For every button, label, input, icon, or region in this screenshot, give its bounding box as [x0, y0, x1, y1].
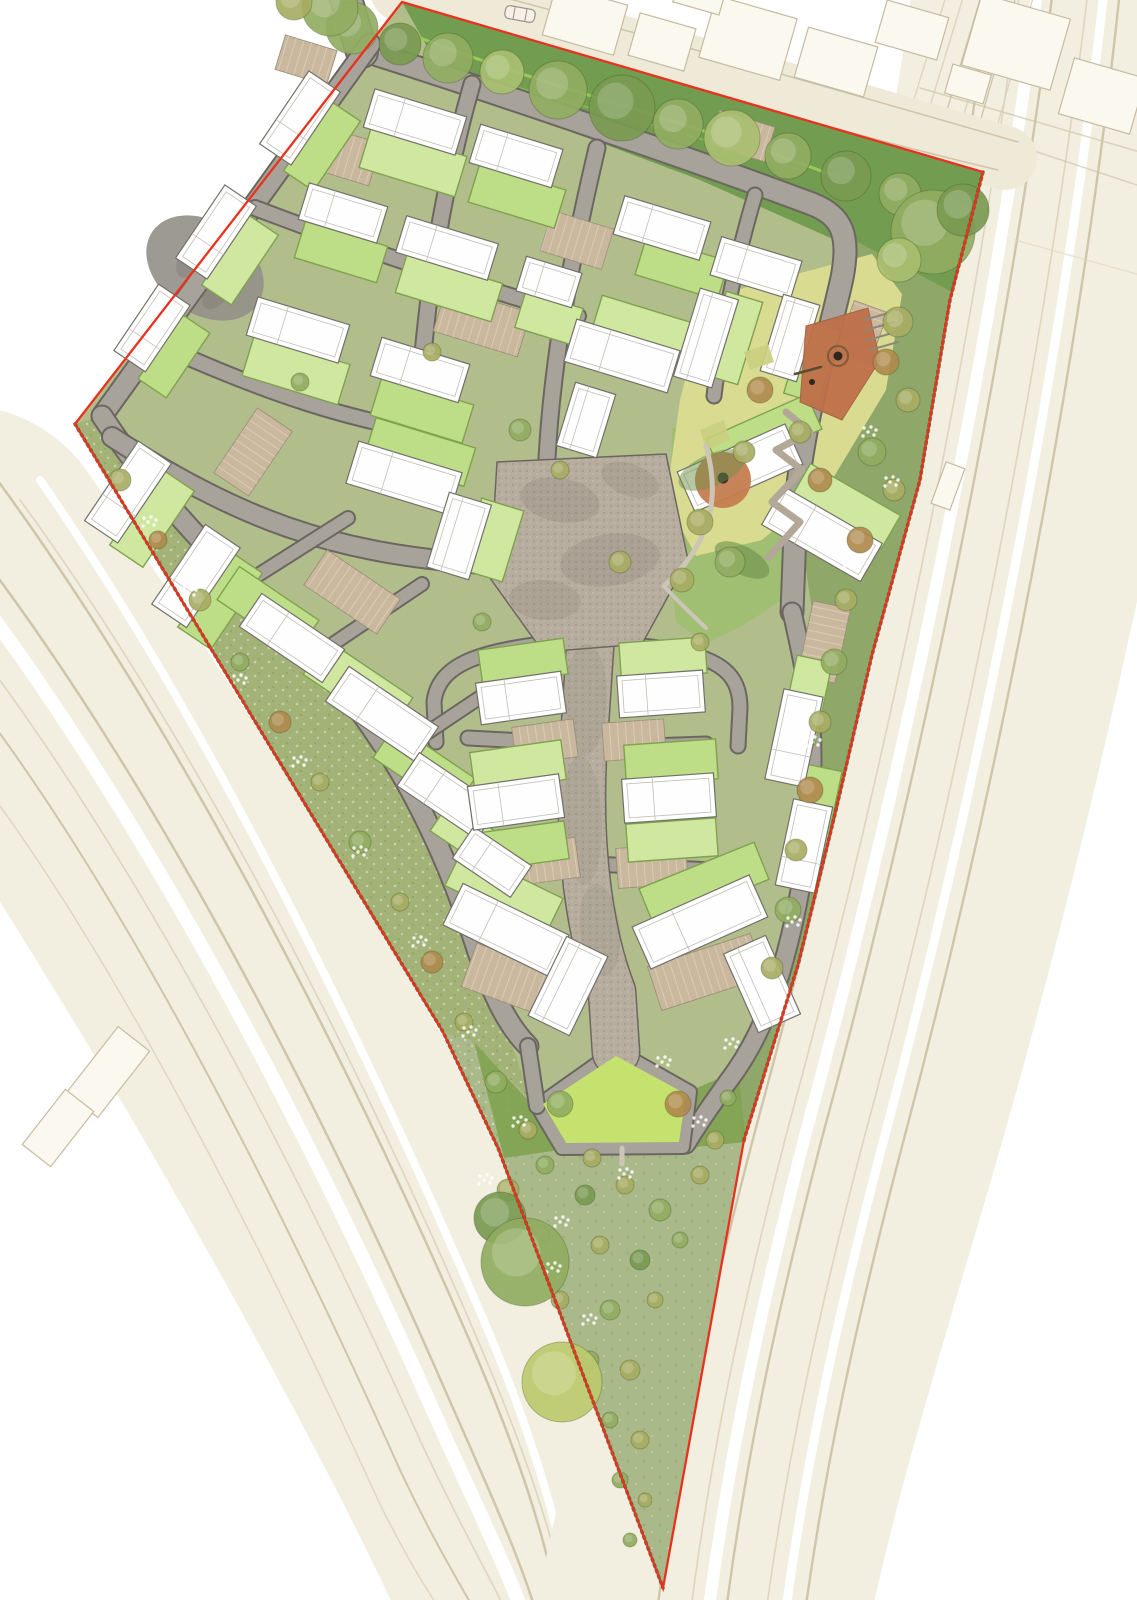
tree — [706, 1131, 724, 1149]
tree — [575, 1185, 595, 1205]
flower-dot — [816, 743, 819, 746]
tree — [883, 479, 905, 501]
tree — [809, 711, 831, 733]
flower-dot — [668, 1058, 671, 1061]
flower-dot — [872, 433, 875, 436]
flower-dot — [519, 1115, 522, 1118]
tree-highlight — [887, 310, 904, 327]
tree — [391, 893, 409, 911]
tree — [733, 441, 755, 463]
flower-dot — [472, 1033, 475, 1036]
flower-dot — [192, 593, 195, 596]
tree — [665, 1091, 691, 1117]
flower-dot — [786, 916, 789, 919]
tree-highlight — [659, 105, 687, 133]
tree-highlight — [112, 472, 124, 484]
tree — [349, 831, 371, 853]
flower-dot — [556, 1269, 559, 1272]
flower-dot — [734, 1045, 737, 1048]
tree — [149, 531, 167, 549]
tree-highlight — [352, 834, 364, 846]
tree — [873, 349, 899, 375]
tree — [715, 547, 745, 577]
tree-highlight — [876, 352, 890, 366]
flower-dot — [843, 564, 846, 567]
flower-dot — [462, 1026, 465, 1029]
flower-dot — [625, 1167, 628, 1170]
tree — [649, 1199, 671, 1221]
flower-dot — [302, 763, 305, 766]
tree — [509, 419, 531, 441]
flower-dot — [586, 1318, 589, 1321]
tree-highlight — [693, 635, 703, 645]
tree-highlight — [788, 842, 800, 854]
flower-dot — [141, 524, 144, 527]
tree — [835, 589, 857, 611]
tree-highlight — [597, 83, 633, 119]
tree-highlight — [585, 1151, 595, 1161]
tree-highlight — [429, 39, 457, 67]
tree — [423, 343, 441, 361]
tree — [653, 99, 703, 149]
tree-highlight — [393, 895, 403, 905]
tree-highlight — [633, 1252, 644, 1263]
tree — [189, 589, 211, 611]
tree-highlight — [778, 900, 792, 914]
flower-dot — [411, 944, 414, 947]
tree — [704, 110, 760, 166]
tree-highlight — [850, 530, 864, 544]
garden-lawn — [626, 818, 718, 862]
flower-dot — [793, 915, 796, 918]
flower-dot — [558, 1220, 561, 1223]
flower-dot — [806, 736, 809, 739]
tree-highlight — [771, 138, 796, 163]
tree — [620, 1360, 640, 1380]
tree-highlight — [800, 780, 814, 794]
circle-detail — [834, 352, 843, 361]
tree-highlight — [604, 1414, 613, 1423]
tree — [937, 184, 989, 236]
flower-dot — [146, 520, 149, 523]
flower-dot — [362, 853, 365, 856]
flower-dot — [617, 1176, 620, 1179]
tree — [670, 568, 694, 592]
tree — [485, 1071, 507, 1093]
flower-dot — [422, 943, 425, 946]
tree-highlight — [944, 190, 973, 219]
tree-highlight — [512, 422, 524, 434]
flower-dot — [663, 1055, 666, 1058]
flower-dot — [723, 1046, 726, 1049]
flower-dot — [469, 1025, 472, 1028]
tree-highlight — [812, 714, 824, 726]
flower-dot — [736, 1040, 739, 1043]
tree-highlight — [750, 380, 764, 394]
flower-dot — [582, 1314, 585, 1317]
flower-dot — [516, 1120, 519, 1123]
tree-highlight — [827, 157, 855, 185]
flower-dot — [628, 1175, 631, 1178]
flower-dot — [894, 483, 897, 486]
building-footprint — [617, 670, 706, 718]
tree — [847, 527, 873, 553]
flower-dot — [666, 1063, 669, 1066]
tree — [379, 23, 421, 65]
tree-highlight — [640, 1495, 648, 1503]
tree-highlight — [233, 655, 243, 665]
tree-highlight — [652, 1202, 664, 1214]
tree — [602, 1412, 618, 1428]
tree — [691, 1166, 709, 1184]
tree — [522, 1342, 602, 1422]
flower-dot — [522, 1123, 525, 1126]
flower-dot — [874, 428, 877, 431]
tree-highlight — [690, 512, 704, 526]
flower-dot — [359, 845, 362, 848]
tree — [519, 1121, 537, 1139]
flower-dot — [244, 676, 247, 679]
flower-dot — [485, 1173, 488, 1176]
flower-dot — [553, 1224, 556, 1227]
tree-highlight — [192, 592, 204, 604]
flower-dot — [364, 848, 367, 851]
flower-dot — [813, 735, 816, 738]
circle-detail — [809, 379, 815, 385]
flower-dot — [524, 1118, 527, 1121]
building — [617, 670, 706, 718]
tree — [609, 551, 631, 573]
flower-dot — [790, 920, 793, 923]
tree — [647, 1292, 663, 1308]
flower-dot — [299, 755, 302, 758]
flower-dot — [474, 1028, 477, 1031]
tree-highlight — [384, 28, 407, 51]
tree-highlight — [313, 775, 323, 785]
tree — [423, 33, 473, 83]
flower-dot — [618, 1168, 621, 1171]
flower-dot — [466, 1030, 469, 1033]
tree-highlight — [618, 1178, 628, 1188]
tree-highlight — [538, 1158, 548, 1168]
flower-dot — [546, 1262, 549, 1265]
tree-highlight — [674, 1234, 683, 1243]
flower-dot — [292, 756, 295, 759]
flower-dot — [186, 590, 189, 593]
tree-highlight — [668, 1094, 682, 1108]
tree — [877, 238, 921, 282]
tree-highlight — [424, 954, 436, 966]
flower-dot — [861, 434, 864, 437]
tree-highlight — [550, 1094, 564, 1108]
tree — [311, 773, 329, 791]
tree — [231, 653, 249, 671]
tree — [797, 777, 823, 803]
flower-dot — [182, 586, 185, 589]
site-plan-svg — [0, 0, 1137, 1600]
tree-highlight — [824, 652, 838, 666]
tree — [808, 468, 832, 492]
tree — [747, 377, 773, 403]
tree — [720, 1090, 736, 1106]
masterplan-canvas — [0, 0, 1137, 1600]
tree — [883, 307, 913, 337]
flower-dot — [630, 1170, 633, 1173]
flower-dot — [888, 480, 891, 483]
tree — [623, 1533, 637, 1547]
tree — [761, 957, 783, 979]
tree-highlight — [612, 554, 624, 566]
tree-highlight — [838, 592, 850, 604]
tree-highlight — [603, 1302, 614, 1313]
tree-highlight — [722, 1092, 731, 1101]
flower-dot — [564, 1223, 567, 1226]
tree — [631, 1431, 649, 1449]
flower-dot — [352, 846, 355, 849]
tree-highlight — [272, 714, 284, 726]
flower-dot — [236, 678, 239, 681]
flower-dot — [461, 1034, 464, 1037]
tree-highlight — [884, 178, 907, 201]
flower-dot — [351, 854, 354, 857]
flower-dot — [869, 425, 872, 428]
tree — [536, 1156, 554, 1174]
tree-highlight — [151, 533, 161, 543]
tree-highlight — [532, 1351, 576, 1395]
flower-dot — [512, 1116, 515, 1119]
tree — [551, 461, 569, 479]
flower-dot — [796, 923, 799, 926]
flower-dot — [884, 476, 887, 479]
tree-highlight — [475, 615, 485, 625]
tree — [600, 1300, 620, 1320]
tree — [691, 633, 709, 651]
tree-highlight — [625, 1535, 633, 1543]
flower-dot — [810, 740, 813, 743]
flower-dot — [818, 738, 821, 741]
tree-highlight — [708, 1133, 718, 1143]
tree — [896, 388, 920, 412]
flower-dot — [805, 744, 808, 747]
flower-dot — [891, 475, 894, 478]
tree-highlight — [553, 463, 563, 473]
flower-dot — [660, 1060, 663, 1063]
tree-highlight — [536, 68, 568, 100]
tree — [591, 1236, 609, 1254]
tree-highlight — [486, 55, 510, 79]
tree-highlight — [792, 424, 804, 436]
tree-highlight — [633, 1433, 643, 1443]
tree-highlight — [673, 571, 686, 584]
flower-dot — [416, 940, 419, 943]
tree-highlight — [649, 1294, 658, 1303]
flower-dot — [154, 518, 157, 521]
flower-dot — [731, 1037, 734, 1040]
tree-highlight — [492, 1228, 540, 1276]
tree-highlight — [293, 375, 303, 385]
flower-dot — [622, 1172, 625, 1175]
flower-dot — [181, 594, 184, 597]
flower-dot — [594, 1316, 597, 1319]
flower-dot — [232, 674, 235, 677]
tree-highlight — [719, 550, 736, 567]
tree — [687, 509, 713, 535]
tree-highlight — [488, 1074, 500, 1086]
flower-dot — [239, 673, 242, 676]
flower-dot — [424, 938, 427, 941]
tree — [269, 711, 291, 733]
flower-dot — [696, 1120, 699, 1123]
tree-highlight — [764, 960, 776, 972]
flower-dot — [553, 1261, 556, 1264]
tree-highlight — [811, 471, 824, 484]
flower-dot — [296, 760, 299, 763]
flower-dot — [798, 918, 801, 921]
tree-highlight — [623, 1362, 634, 1373]
flower-dot — [592, 1321, 595, 1324]
flower-dot — [482, 1178, 485, 1181]
flower-dot — [699, 1115, 702, 1118]
flower-dot — [589, 1313, 592, 1316]
flower-dot — [728, 1042, 731, 1045]
tree — [291, 373, 309, 391]
flower-dot — [862, 426, 865, 429]
flower-dot — [554, 1216, 557, 1219]
flower-dot — [356, 850, 359, 853]
tree-highlight — [425, 345, 435, 355]
tree — [547, 1091, 573, 1117]
tree — [821, 649, 847, 675]
tree — [421, 951, 443, 973]
flower-dot — [419, 935, 422, 938]
flower-dot — [242, 681, 245, 684]
tree — [821, 151, 871, 201]
flower-dot — [412, 936, 415, 939]
flower-dot — [655, 1064, 658, 1067]
flower-dot — [189, 585, 192, 588]
tree — [789, 421, 811, 443]
flower-dot — [702, 1123, 705, 1126]
flower-dot — [691, 1124, 694, 1127]
tree-highlight — [711, 116, 742, 147]
flower-dot — [704, 1118, 707, 1121]
tree — [858, 438, 886, 466]
flower-dot — [848, 560, 851, 563]
flower-dot — [194, 588, 197, 591]
flower-dot — [785, 924, 788, 927]
tree — [529, 61, 587, 119]
tree — [785, 839, 807, 861]
flower-dot — [561, 1215, 564, 1218]
flower-dot — [490, 1176, 493, 1179]
flower-dot — [866, 430, 869, 433]
tree-highlight — [578, 1187, 589, 1198]
flower-dot — [724, 1038, 727, 1041]
flower-dot — [511, 1124, 514, 1127]
flower-dot — [581, 1322, 584, 1325]
tree — [765, 133, 811, 179]
tree-highlight — [457, 1015, 467, 1025]
building-footprint — [622, 773, 717, 823]
tree-highlight — [862, 441, 877, 456]
flower-dot — [883, 484, 886, 487]
flower-dot — [149, 515, 152, 518]
tree — [473, 613, 491, 631]
flower-dot — [477, 1182, 480, 1185]
flower-dot — [844, 556, 847, 559]
tree-highlight — [883, 243, 907, 267]
flower-dot — [478, 1174, 481, 1177]
tree-highlight — [693, 1168, 703, 1178]
tree-highlight — [593, 1238, 603, 1248]
tree — [630, 1250, 650, 1270]
flower-dot — [692, 1116, 695, 1119]
road-surface — [528, 1046, 537, 1106]
tree — [672, 1232, 688, 1248]
tree-highlight — [899, 391, 912, 404]
tree-highlight — [481, 1198, 510, 1227]
flower-dot — [550, 1266, 553, 1269]
flower-dot — [291, 764, 294, 767]
flower-dot — [566, 1218, 569, 1221]
flower-dot — [656, 1056, 659, 1059]
building — [622, 773, 717, 823]
flower-dot — [854, 563, 857, 566]
flower-dot — [896, 478, 899, 481]
tree — [638, 1493, 652, 1507]
flower-dot — [856, 558, 859, 561]
tree — [480, 50, 524, 94]
flower-dot — [304, 758, 307, 761]
flower-dot — [488, 1181, 491, 1184]
flower-dot — [558, 1264, 561, 1267]
tree — [583, 1149, 601, 1167]
flower-dot — [142, 516, 145, 519]
tree-highlight — [736, 444, 748, 456]
garden-plot — [626, 818, 718, 862]
flower-dot — [851, 555, 854, 558]
flower-dot — [152, 523, 155, 526]
tree — [589, 75, 655, 141]
